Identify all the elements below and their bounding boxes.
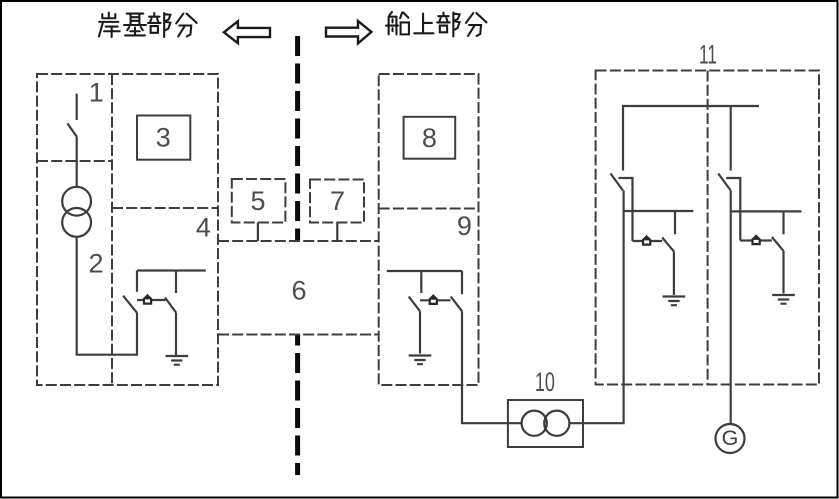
- svg-text:6: 6: [291, 276, 306, 306]
- svg-text:7: 7: [330, 186, 345, 216]
- svg-text:4: 4: [196, 213, 211, 243]
- svg-text:8: 8: [422, 123, 437, 153]
- svg-text:3: 3: [156, 123, 171, 153]
- svg-text:2: 2: [88, 249, 103, 279]
- svg-text:9: 9: [457, 211, 472, 241]
- svg-text:11: 11: [699, 40, 717, 70]
- svg-text:G: G: [722, 426, 739, 450]
- svg-text:1: 1: [89, 78, 104, 108]
- svg-text:5: 5: [250, 186, 265, 216]
- svg-text:10: 10: [535, 367, 555, 397]
